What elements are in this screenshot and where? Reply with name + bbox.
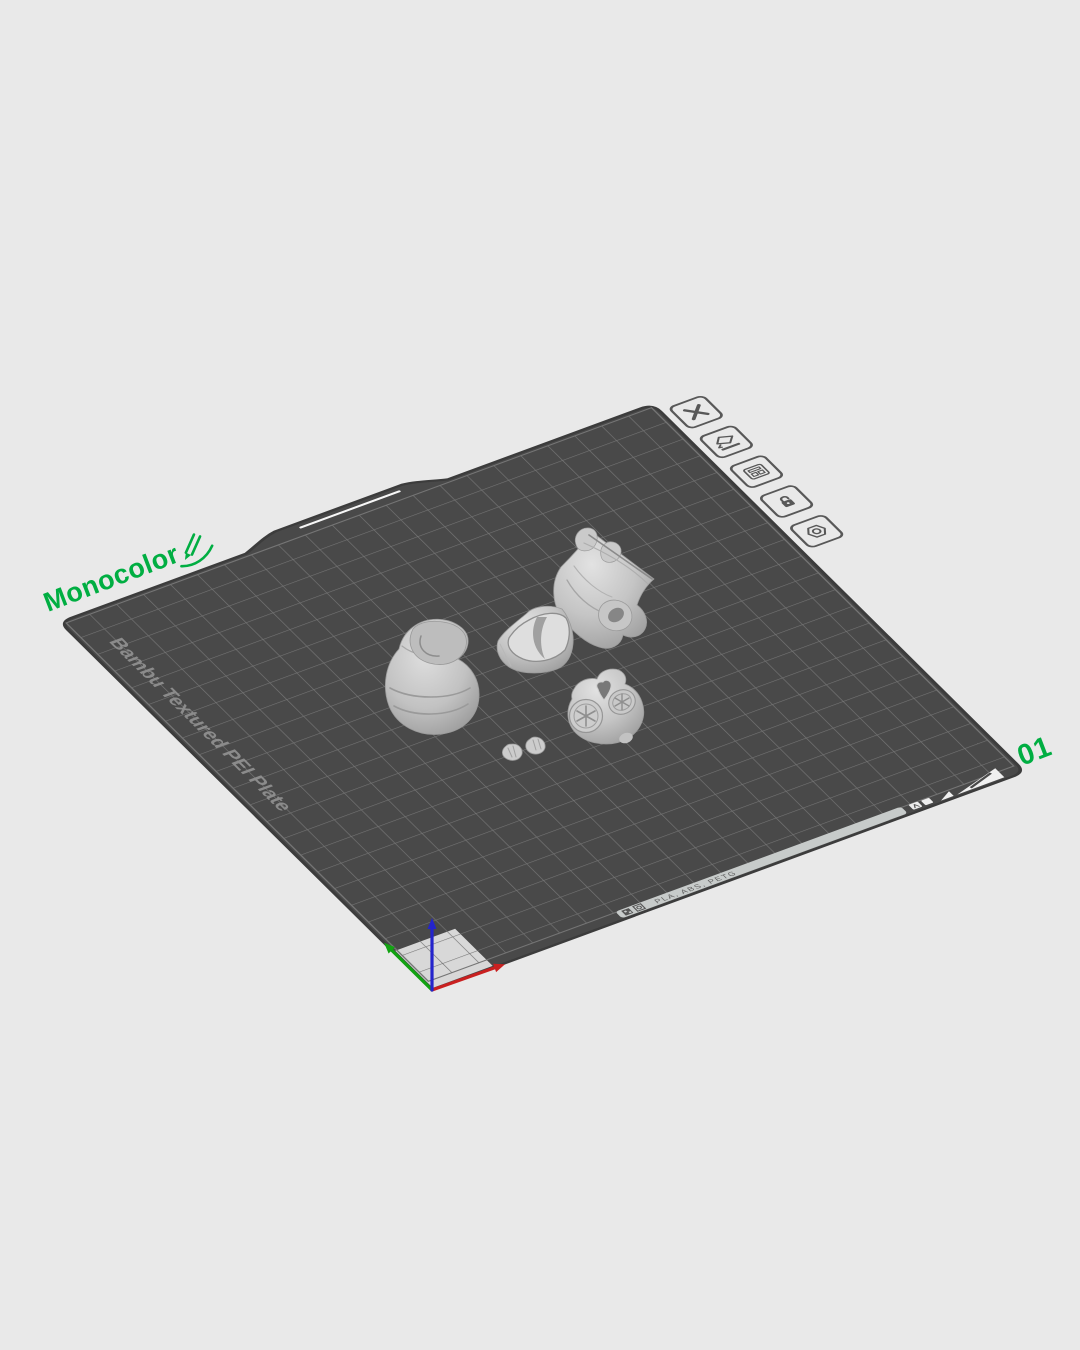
scene-3d: Bambu Textured PEI Plate PLA, ABS, PETG: [0, 0, 1080, 1350]
slicer-viewport: Bambu Textured PEI Plate PLA, ABS, PETG: [0, 0, 1080, 1350]
turban-top-knot: [410, 621, 466, 664]
hand-blob: [526, 737, 545, 754]
model-hand-part-right[interactable]: [526, 737, 545, 754]
model-hand-part-left[interactable]: [502, 744, 522, 760]
hand-blob: [502, 744, 522, 760]
